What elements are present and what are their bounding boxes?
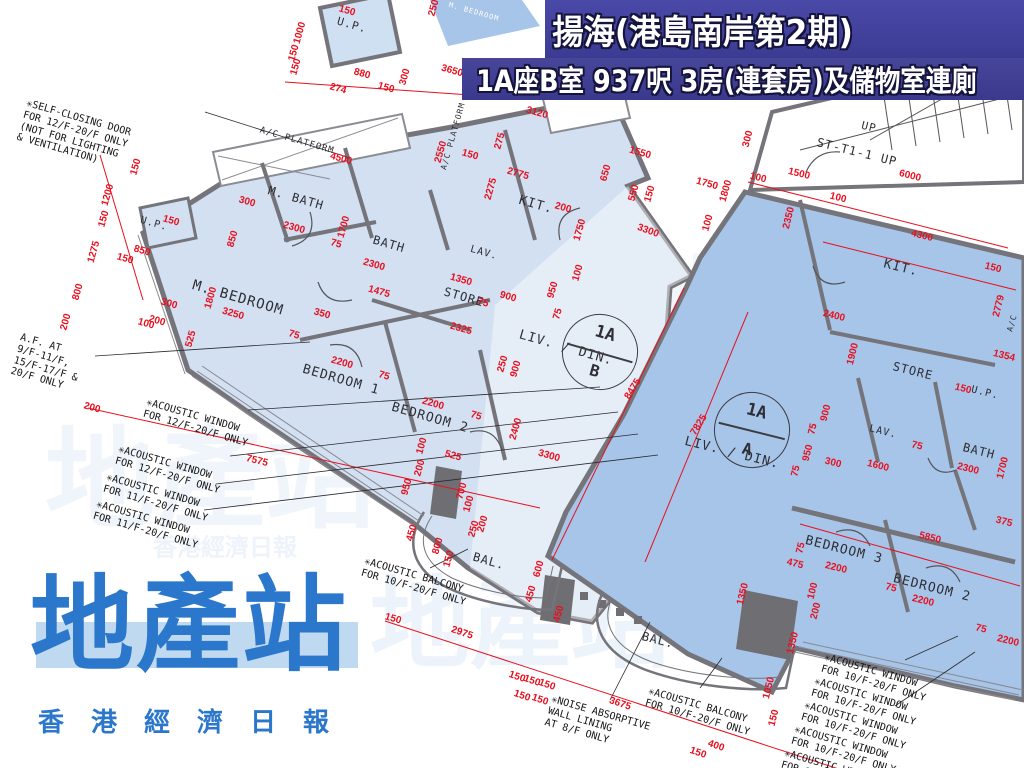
dimension-label: 1750: [572, 218, 589, 242]
dimension-label: 2779: [991, 294, 1007, 318]
dimension-label: 2775: [506, 166, 530, 183]
dimension-label: 2300: [362, 257, 386, 274]
dimension-label: 150: [512, 688, 531, 704]
dimension-label: 150: [688, 745, 707, 761]
dimension-label: 150: [984, 261, 1003, 276]
dimension-label: 3120: [525, 105, 549, 122]
dimension-label: 900: [498, 289, 517, 304]
room-label: LAV.: [868, 423, 898, 440]
dimension-label: 600: [531, 559, 546, 578]
dimension-label: 150: [530, 692, 549, 708]
dimension-label: 2275: [483, 177, 500, 201]
banner-subtitle: 1A座B室 937呎 3房(連套房)及儲物室連廁: [462, 58, 1024, 100]
room-label: BAL.: [640, 629, 675, 651]
dimension-label: 75: [469, 409, 483, 423]
annotation-note: ✳NOISE ABSORPTIVE WALL LINING AT 8/F ONL…: [543, 694, 651, 756]
dimension-label: 75: [884, 581, 897, 594]
dimension-label: 150: [537, 677, 556, 693]
banner-subtitle-text: 1A座B室 937呎 3房(連套房)及儲物室連廁: [462, 58, 977, 100]
dimension-label: 150: [376, 80, 395, 95]
room-label: BAL.: [471, 550, 506, 573]
room-label: KIT.: [882, 256, 920, 279]
room-label: UP: [860, 119, 878, 135]
dimension-label: 1800: [718, 179, 735, 203]
dimension-label: 300: [397, 67, 412, 86]
dimension-label: 800: [430, 536, 445, 555]
dimension-label: 6000: [898, 168, 922, 184]
dimension-label: 650: [598, 163, 613, 182]
dimension-label: 150: [460, 147, 479, 162]
dimension-label: 150: [128, 157, 143, 176]
dimension-label: 75: [806, 422, 819, 435]
dimension-label: 900: [819, 404, 834, 423]
dimension-label: 250: [495, 354, 510, 373]
dimension-label: 75: [910, 439, 923, 452]
dimension-label: 2300: [282, 220, 306, 237]
dimension-label: 75: [551, 307, 565, 321]
dimension-label: 200: [58, 312, 73, 331]
room-label: KIT.: [517, 193, 555, 217]
dimension-label: 4300: [910, 228, 934, 244]
dimension-label: 900: [508, 359, 523, 378]
logo-brand-name: 地產站: [30, 566, 348, 686]
dimension-label: 950: [801, 444, 816, 463]
dimension-label: 75: [287, 328, 301, 342]
dimension-label: 1475: [367, 284, 391, 301]
dimension-label: 450: [404, 523, 419, 542]
dimension-label: 1050: [761, 676, 777, 700]
banner-title: 揚海(港島南岸第2期): [545, 0, 1024, 58]
room-label: M. BATH: [266, 183, 325, 212]
dimension-label: 100: [749, 171, 768, 186]
floorplan-page: 地產站地產站地產站香港經濟日報香港經濟日報: [0, 0, 1024, 768]
dimension-label: 75: [789, 464, 802, 477]
annotation-note: ✳ACOUSTIC WINDOW FOR 12/F-20/F ONLY: [141, 397, 252, 450]
dimension-label: 300: [159, 296, 178, 311]
dimension-label: 200: [82, 400, 101, 415]
dimension-label: 100: [700, 213, 715, 232]
dimension-label: 2325: [449, 321, 473, 338]
room-label: ST-T1-1 UP: [815, 135, 898, 168]
dimension-label: 3650: [440, 63, 464, 80]
banner-title-text: 揚海(港島南岸第2期): [545, 5, 853, 54]
dimension-label: 4500: [329, 151, 353, 168]
room-label: A/C: [1005, 313, 1018, 332]
dimension-label: 75: [377, 369, 391, 383]
dimension-label: 800: [70, 282, 85, 301]
dimension-label: 200: [412, 458, 427, 477]
dimension-label: 350: [312, 306, 331, 321]
dimension-label: 880: [352, 66, 371, 81]
dimension-label: 2200: [824, 560, 848, 576]
dimension-label: 150: [954, 382, 973, 397]
dimension-label: 2350: [781, 206, 797, 230]
dimension-label: 275: [492, 131, 507, 150]
dimension-label: 3250: [221, 306, 245, 323]
dimension-label: 1350: [735, 582, 751, 606]
dimension-label: 1600: [866, 458, 890, 474]
dimension-label: 200: [553, 200, 572, 215]
dimension-label: 2300: [956, 461, 980, 477]
dimension-label: 475: [786, 557, 805, 572]
dimension-label: 200: [475, 514, 490, 533]
dimension-label: 400: [706, 738, 725, 754]
dimension-label: 2200: [330, 355, 354, 372]
unit-circle: 1AA: [706, 384, 798, 476]
dimension-label: 1900: [845, 342, 861, 366]
dimension-label: 850: [132, 243, 151, 258]
dimension-label: 300: [237, 194, 256, 209]
dimension-label: 7825: [688, 413, 709, 438]
dimension-label: 150: [642, 184, 657, 203]
dimension-label: 7575: [245, 453, 269, 469]
dimension-label: 1550: [628, 145, 652, 162]
dimension-label: 100: [829, 191, 848, 206]
dimension-label: 3300: [636, 222, 661, 240]
dimension-label: 100: [570, 263, 585, 282]
room-label: A/C PLATFORM: [259, 126, 336, 157]
dimension-label: 75: [329, 237, 343, 251]
dimension-label: 3300: [537, 448, 561, 465]
dimension-label: 2200: [996, 633, 1020, 649]
dimension-label: 950: [545, 280, 560, 299]
dimension-label: 150: [441, 549, 456, 568]
dimension-label: 1350: [785, 631, 801, 655]
dimension-label: 274: [328, 81, 347, 96]
dimension-label: 1275: [86, 240, 103, 264]
logo-tagline: 香港經濟日報: [38, 702, 356, 739]
dimension-label: 550: [626, 183, 641, 202]
room-label: LAV.: [469, 244, 499, 262]
dimension-label: 250: [426, 0, 441, 18]
annotation-note: ✳SELF-CLOSING DOOR FOR 12/F-20/F ONLY (N…: [15, 98, 132, 173]
dimension-label: 1700: [336, 215, 353, 239]
dimension-label: 1200: [100, 183, 117, 207]
dimension-label: 1700: [995, 456, 1011, 480]
dimension-label: 2400: [508, 417, 525, 441]
room-label: U.P.: [970, 384, 1000, 401]
dimension-label: 2975: [450, 624, 475, 642]
publisher-logo: 地產站 香港經濟日報: [28, 578, 388, 758]
dimension-label: 200: [809, 602, 824, 621]
dimension-label: 450: [523, 584, 538, 603]
dimension-label: 300: [741, 130, 756, 149]
dimension-label: 300: [824, 456, 843, 471]
dimension-label: 75: [974, 622, 987, 635]
dimension-label: 450: [551, 604, 566, 623]
dimension-label: 1354: [992, 348, 1016, 364]
annotation-note: ✳ACOUSTIC BALCONY FOR 10/F-20/F ONLY: [643, 686, 754, 739]
dimension-label: 75: [794, 541, 807, 554]
dimension-label: 100: [806, 582, 821, 601]
dimension-label: 1500: [787, 166, 811, 182]
room-label: STORE: [891, 359, 934, 383]
dimension-label: 950: [399, 477, 414, 496]
dimension-label: 100: [414, 436, 429, 455]
dimension-label: 850: [225, 229, 240, 248]
dimension-label: 150: [767, 709, 782, 728]
dimension-label: 1750: [695, 176, 719, 193]
room-label: BATH: [371, 233, 406, 256]
dimension-label: 375: [995, 515, 1014, 530]
dimension-label: 5850: [918, 530, 942, 546]
room-label: BATH: [961, 440, 996, 462]
dimension-label: 150: [96, 209, 111, 228]
dimension-label: 1000: [292, 21, 309, 45]
room-label: BEDROOM 3: [804, 533, 885, 567]
annotation-note: A.F. AT 9/F-11/F, 15/F-17/F & 20/F ONLY: [9, 332, 86, 396]
dimension-label: 2400: [822, 308, 846, 324]
dimension-label: 525: [183, 329, 198, 348]
room-label: M. BEDROOM: [448, 1, 500, 23]
dimension-label: 525: [443, 448, 462, 463]
